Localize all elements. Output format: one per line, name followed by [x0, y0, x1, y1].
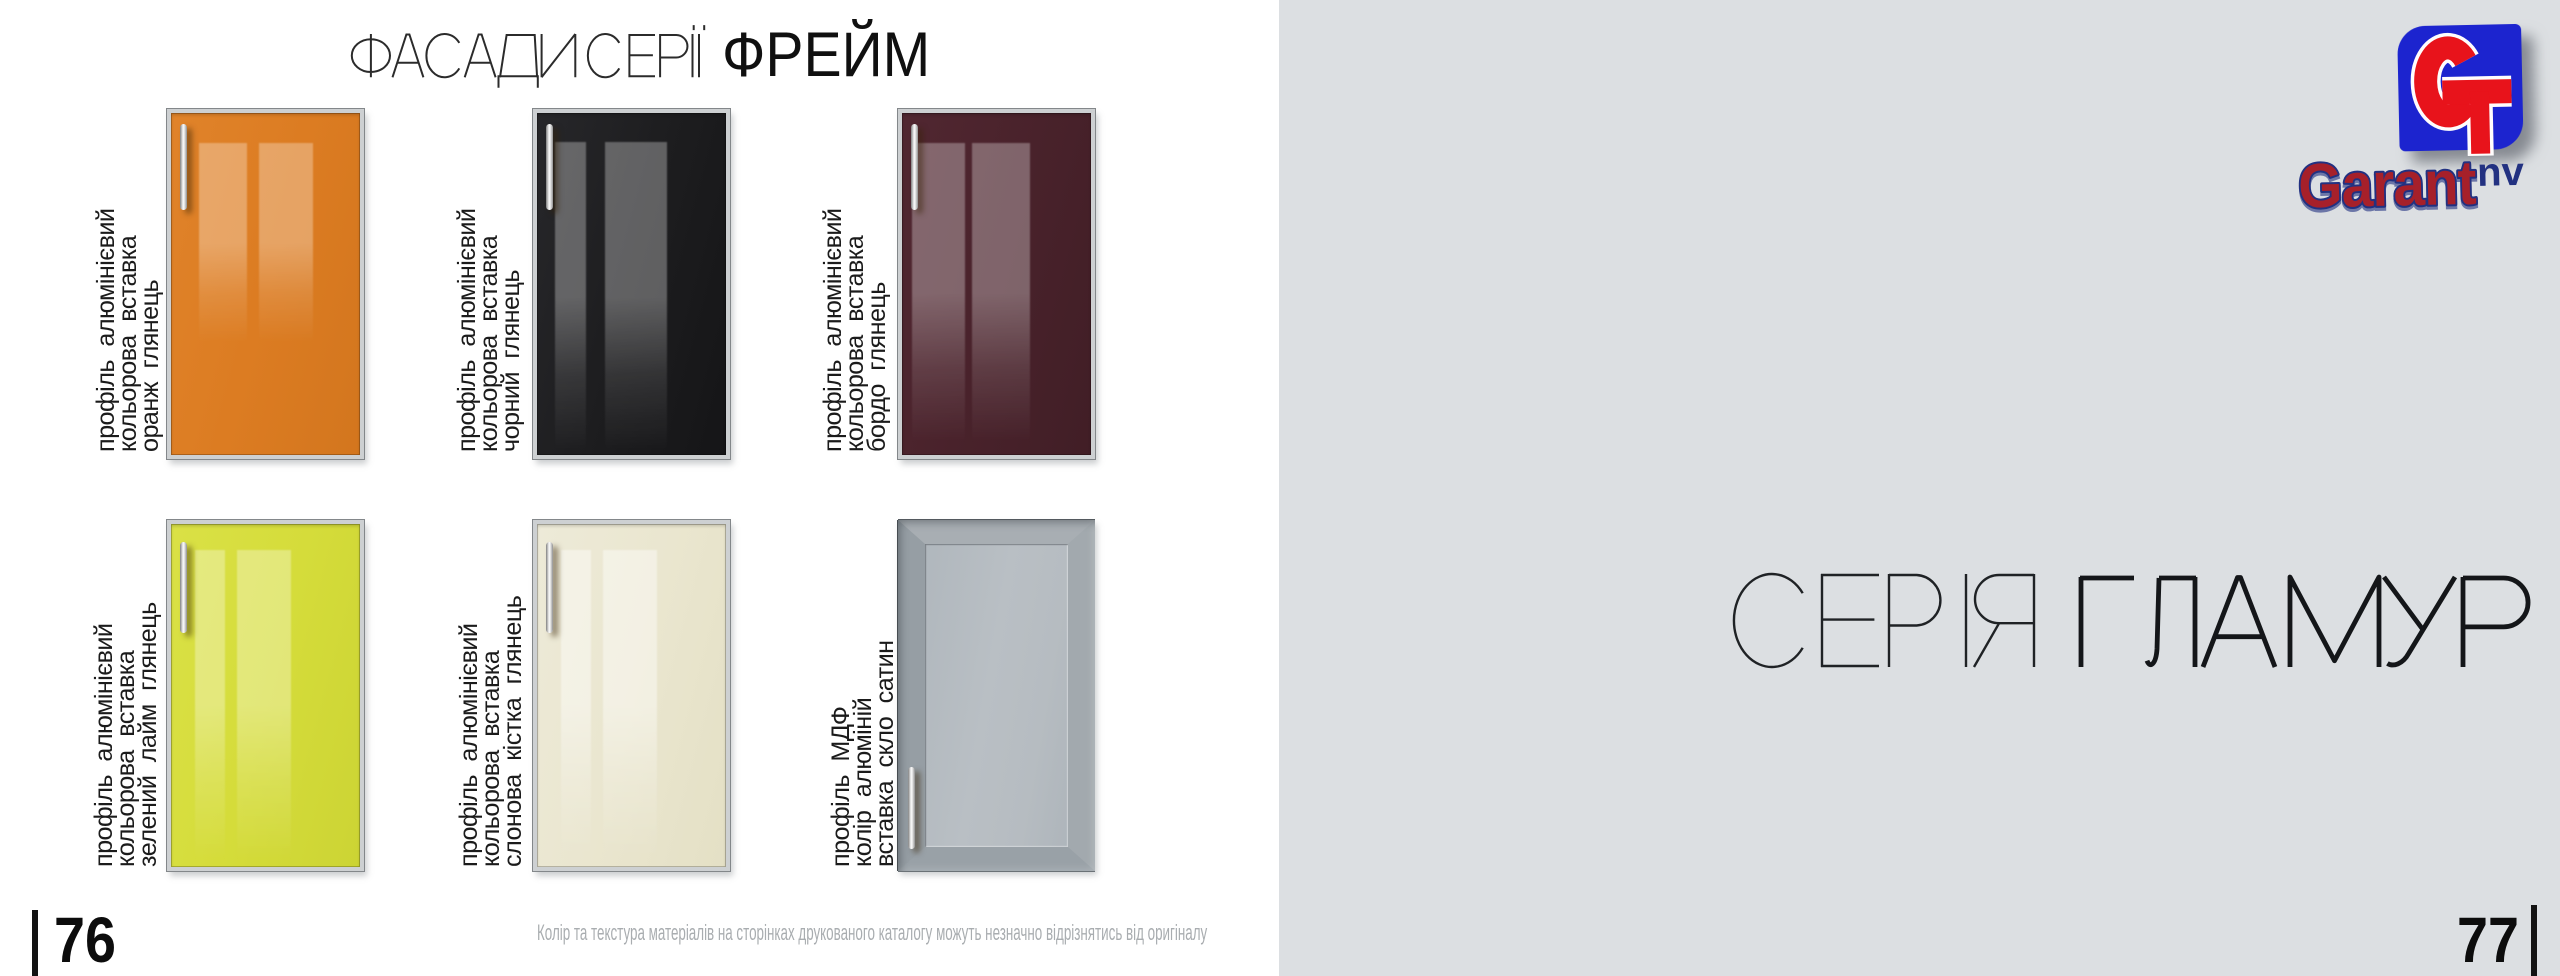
svg-text:Garant: Garant	[2298, 147, 2478, 221]
svg-text:nv: nv	[2477, 150, 2525, 195]
